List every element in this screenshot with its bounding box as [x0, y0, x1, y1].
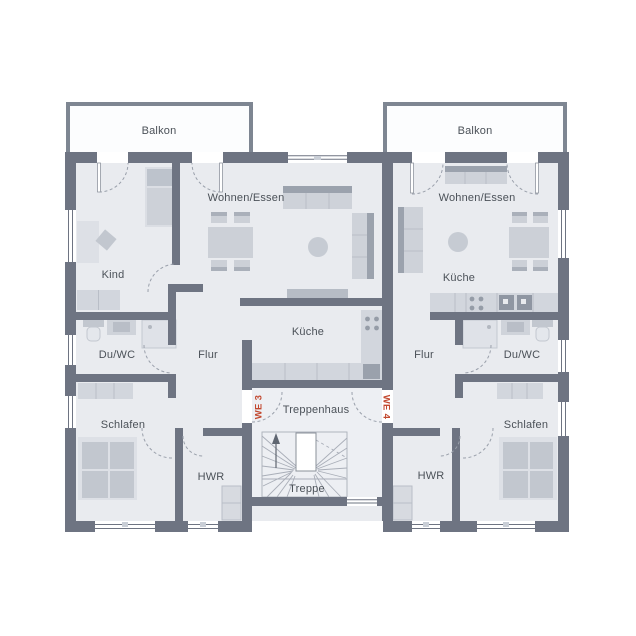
window [558, 210, 569, 258]
label-treppe: Treppe [289, 483, 325, 495]
window [188, 521, 218, 532]
label-we3: WE 3 [254, 395, 265, 419]
label-kueche-right: Küche [443, 272, 475, 284]
label-flur-right: Flur [414, 349, 434, 361]
kind-bed [145, 167, 175, 227]
label-hwr-left: HWR [198, 471, 225, 483]
label-kueche-left: Küche [292, 326, 324, 338]
window [65, 396, 76, 428]
sofa-right [445, 166, 507, 184]
label-balkon-right: Balkon [458, 125, 493, 137]
washer-left [222, 486, 241, 520]
label-kind: Kind [102, 269, 125, 281]
door-leaf [536, 163, 539, 193]
door-leaf [220, 163, 223, 192]
label-we4: WE 4 [381, 395, 392, 420]
bed-left [78, 437, 137, 500]
door-leaf [411, 163, 414, 193]
kind-desk [77, 221, 99, 263]
door-leaf [98, 163, 101, 192]
balcony-left: Balkon [68, 104, 251, 157]
sofa-left [283, 186, 352, 209]
window [347, 497, 377, 506]
balcony-right: Balkon [385, 104, 565, 157]
floor-plan-canvas: Balkon Balkon [0, 0, 636, 636]
label-du-wc-right: Du/WC [504, 349, 540, 361]
washer-right [393, 486, 412, 520]
label-hwr-right: HWR [418, 470, 445, 482]
couch-left [352, 213, 374, 279]
couch-right [398, 207, 423, 273]
label-du-wc-left: Du/WC [99, 349, 135, 361]
label-schlafen-right: Schlafen [504, 419, 548, 431]
wardrobe-left [78, 383, 133, 399]
kitchen-counter-right [430, 293, 558, 312]
window [558, 340, 569, 372]
label-schlafen-left: Schlafen [101, 419, 145, 431]
stair-newel [296, 433, 316, 471]
window [558, 402, 569, 436]
sideboard-left [287, 289, 348, 298]
label-flur-left: Flur [198, 349, 218, 361]
kind-dresser [77, 290, 120, 310]
label-balkon-left: Balkon [142, 125, 177, 137]
window [95, 521, 155, 532]
label-wohnen-essen-left: Wohnen/Essen [208, 192, 285, 204]
coffee-table-right [448, 232, 468, 252]
label-wohnen-essen-right: Wohnen/Essen [439, 192, 516, 204]
party-wall [382, 163, 393, 521]
window [288, 152, 347, 163]
floor-plan: Balkon Balkon [0, 0, 636, 636]
wardrobe-right [497, 383, 543, 399]
window [412, 521, 440, 532]
bed-right [499, 437, 557, 500]
window [65, 335, 76, 365]
label-treppenhaus: Treppenhaus [283, 404, 350, 416]
coffee-table-left [308, 237, 328, 257]
window [65, 210, 76, 262]
window [477, 521, 535, 532]
